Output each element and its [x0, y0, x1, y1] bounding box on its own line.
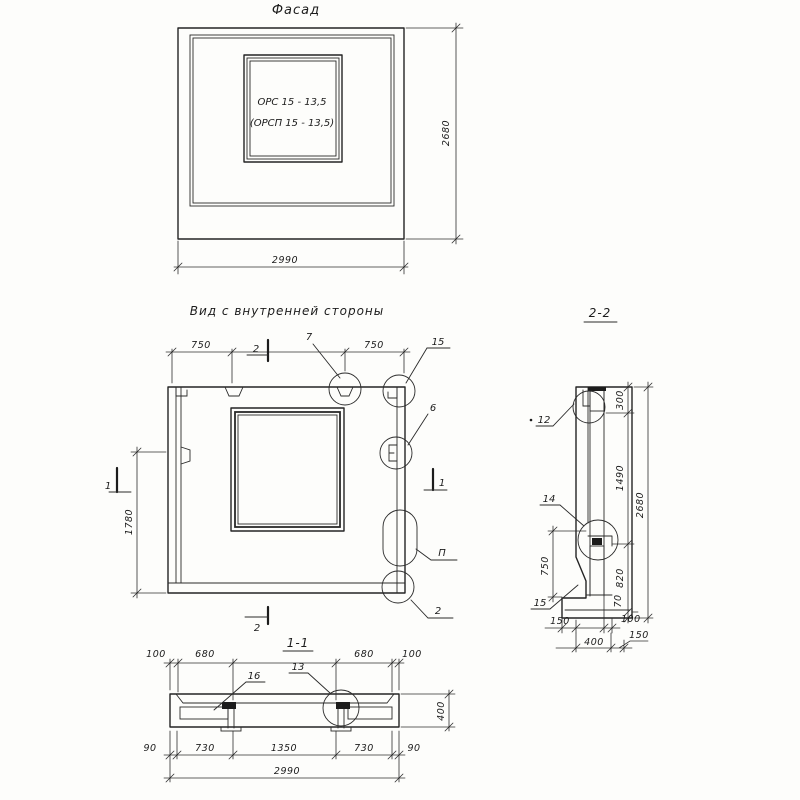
section11-dim-top-0: 100	[146, 649, 166, 660]
inner-detail-circle-2	[382, 571, 414, 603]
section2-marker-bottom-label: 2	[254, 623, 260, 634]
section11-callout-13-leader	[289, 673, 330, 693]
inner-detail-circle-6	[380, 437, 412, 469]
section22-callout-14: 14	[543, 494, 556, 505]
inner-outline	[168, 387, 405, 593]
section22-top-hook	[583, 390, 590, 406]
section11-title: 1-1	[287, 636, 310, 650]
inner-callout-6: 6	[430, 403, 436, 414]
section-1-1-view: 1-1 16 13 100 680 680 100 400 90 730 135…	[143, 636, 455, 782]
section2-marker-top-label: 2	[253, 344, 259, 355]
section11-dim-top-2: 680	[354, 649, 374, 660]
inner-dim-top-right: 750	[364, 340, 384, 351]
inner-detail-circle-7	[329, 373, 361, 405]
section22-dim-bottom-r2-1: 150	[629, 630, 649, 641]
section22-detail-circle-12	[573, 391, 605, 423]
section11-dim-bottom-1: 730	[195, 743, 215, 754]
section11-ribs	[228, 703, 344, 728]
section22-dim-bottom-r1-0: 150	[550, 616, 570, 627]
section1-marker-left-label: 1	[105, 481, 111, 492]
facade-height-dim-lines	[406, 23, 463, 244]
section22-title: 2-2	[589, 306, 612, 320]
inner-view: Вид с внутренней стороны 750 750 1780 2 …	[105, 304, 457, 634]
section11-callout-16: 16	[248, 671, 261, 682]
section22-callout-15: 15	[534, 598, 547, 609]
section11-outline	[170, 694, 399, 727]
inner-detail-corner-hook	[388, 388, 397, 398]
section22-hatch-top	[590, 389, 604, 411]
section11-dim-bottom-3: 730	[354, 743, 374, 754]
facade-stamp-line1: ОРС 15 - 13,5	[257, 97, 326, 108]
section11-hatch-right	[348, 707, 392, 719]
inner-callout-p-leader	[416, 549, 457, 560]
facade-window-frame-1	[244, 55, 342, 162]
inner-callout-2: 2	[435, 606, 441, 617]
section11-dim-height: 400	[436, 701, 447, 721]
section22-dim-bottom-r1-1: 100	[621, 614, 641, 625]
section22-dim-bottom-r2-0: 400	[584, 637, 604, 648]
inner-detail-stadium	[383, 510, 417, 566]
inner-callout-7: 7	[306, 332, 313, 343]
section22-callout-12: 12	[538, 415, 551, 426]
section-2-2-view: 2-2 12 14 15 300 1490 820 70 2680 750 15	[530, 306, 653, 652]
drawing-sheet: Фасад ОРС 15 - 13,5 (ОРСП 15 - 13,5) 268…	[0, 0, 800, 800]
section1-marker-right-label: 1	[439, 478, 445, 489]
inner-dim-top-left: 750	[191, 340, 211, 351]
section11-anchor-left	[222, 702, 236, 709]
inner-left-dim-lines	[131, 447, 166, 598]
facade-window-frame-3	[250, 61, 336, 156]
section11-callout-16-leader	[214, 682, 265, 710]
section22-anchor-mid	[592, 538, 602, 545]
section22-left-dim-lines	[548, 526, 586, 602]
section22-hatch-mid	[590, 546, 604, 595]
inner-window-frame-2	[235, 412, 340, 527]
section22-dim-overall: 2680	[635, 492, 646, 518]
inner-top-notch	[225, 387, 243, 396]
section11-hatch-left	[180, 707, 228, 719]
inner-top-left-hook	[176, 387, 187, 396]
inner-callout-6-leader	[408, 414, 428, 445]
section22-dim-right-1: 1490	[615, 465, 626, 491]
inner-window-frame-3	[238, 415, 337, 524]
section11-dim-top-3: 100	[402, 649, 422, 660]
section11-dim-bottom-2: 1350	[271, 743, 297, 754]
section11-dim-overall: 2990	[274, 766, 300, 777]
inner-dim-left-height: 1780	[124, 509, 135, 535]
section11-callout-13: 13	[292, 662, 305, 673]
inner-callout-15: 15	[432, 337, 445, 348]
section22-callout-14-leader	[540, 505, 584, 526]
section11-dim-bottom-4: 90	[407, 743, 420, 754]
section22-anchor-top	[588, 387, 606, 391]
section22-callout-12-dot	[530, 419, 533, 422]
section22-dim-right-0: 300	[615, 390, 626, 410]
facade-outline	[178, 28, 404, 239]
section11-dim-top-1: 680	[195, 649, 215, 660]
inner-window-frame-1	[231, 408, 344, 531]
inner-callout-15-leader	[406, 348, 450, 383]
facade-height-dim: 2680	[441, 120, 452, 146]
section11-anchor-right	[336, 702, 350, 709]
inner-detail-circle-corner	[383, 375, 415, 407]
inner-left-lug	[181, 447, 190, 464]
section11-recessed-face	[176, 694, 394, 703]
section22-bottom-row1-lines	[545, 596, 620, 633]
facade-width-dim: 2990	[272, 255, 298, 266]
facade-stamp-line2: (ОРСП 15 - 13,5)	[250, 118, 334, 129]
section22-dim-right-2: 820	[615, 568, 626, 588]
inner-callout-7-leader	[313, 344, 340, 378]
section11-dim-bottom-0: 90	[143, 743, 156, 754]
inner-top-dim-lines	[166, 348, 410, 383]
inner-callout-2-leader	[411, 600, 453, 618]
inner-face-lines	[168, 387, 405, 583]
inner-detail-bracket-6	[389, 445, 397, 461]
facade-title: Фасад	[272, 3, 320, 18]
drawing-canvas: Фасад ОРС 15 - 13,5 (ОРСП 15 - 13,5) 268…	[0, 0, 800, 800]
section22-dim-left: 750	[540, 556, 551, 576]
inner-detail-notch-7	[337, 387, 353, 396]
inner-title: Вид с внутренней стороны	[190, 304, 384, 318]
facade-view: Фасад ОРС 15 - 13,5 (ОРСП 15 - 13,5) 268…	[174, 3, 463, 274]
inner-callout-p: П	[438, 548, 446, 559]
facade-window-frame-2	[247, 58, 339, 159]
section22-dim-right-3: 70	[613, 594, 624, 607]
